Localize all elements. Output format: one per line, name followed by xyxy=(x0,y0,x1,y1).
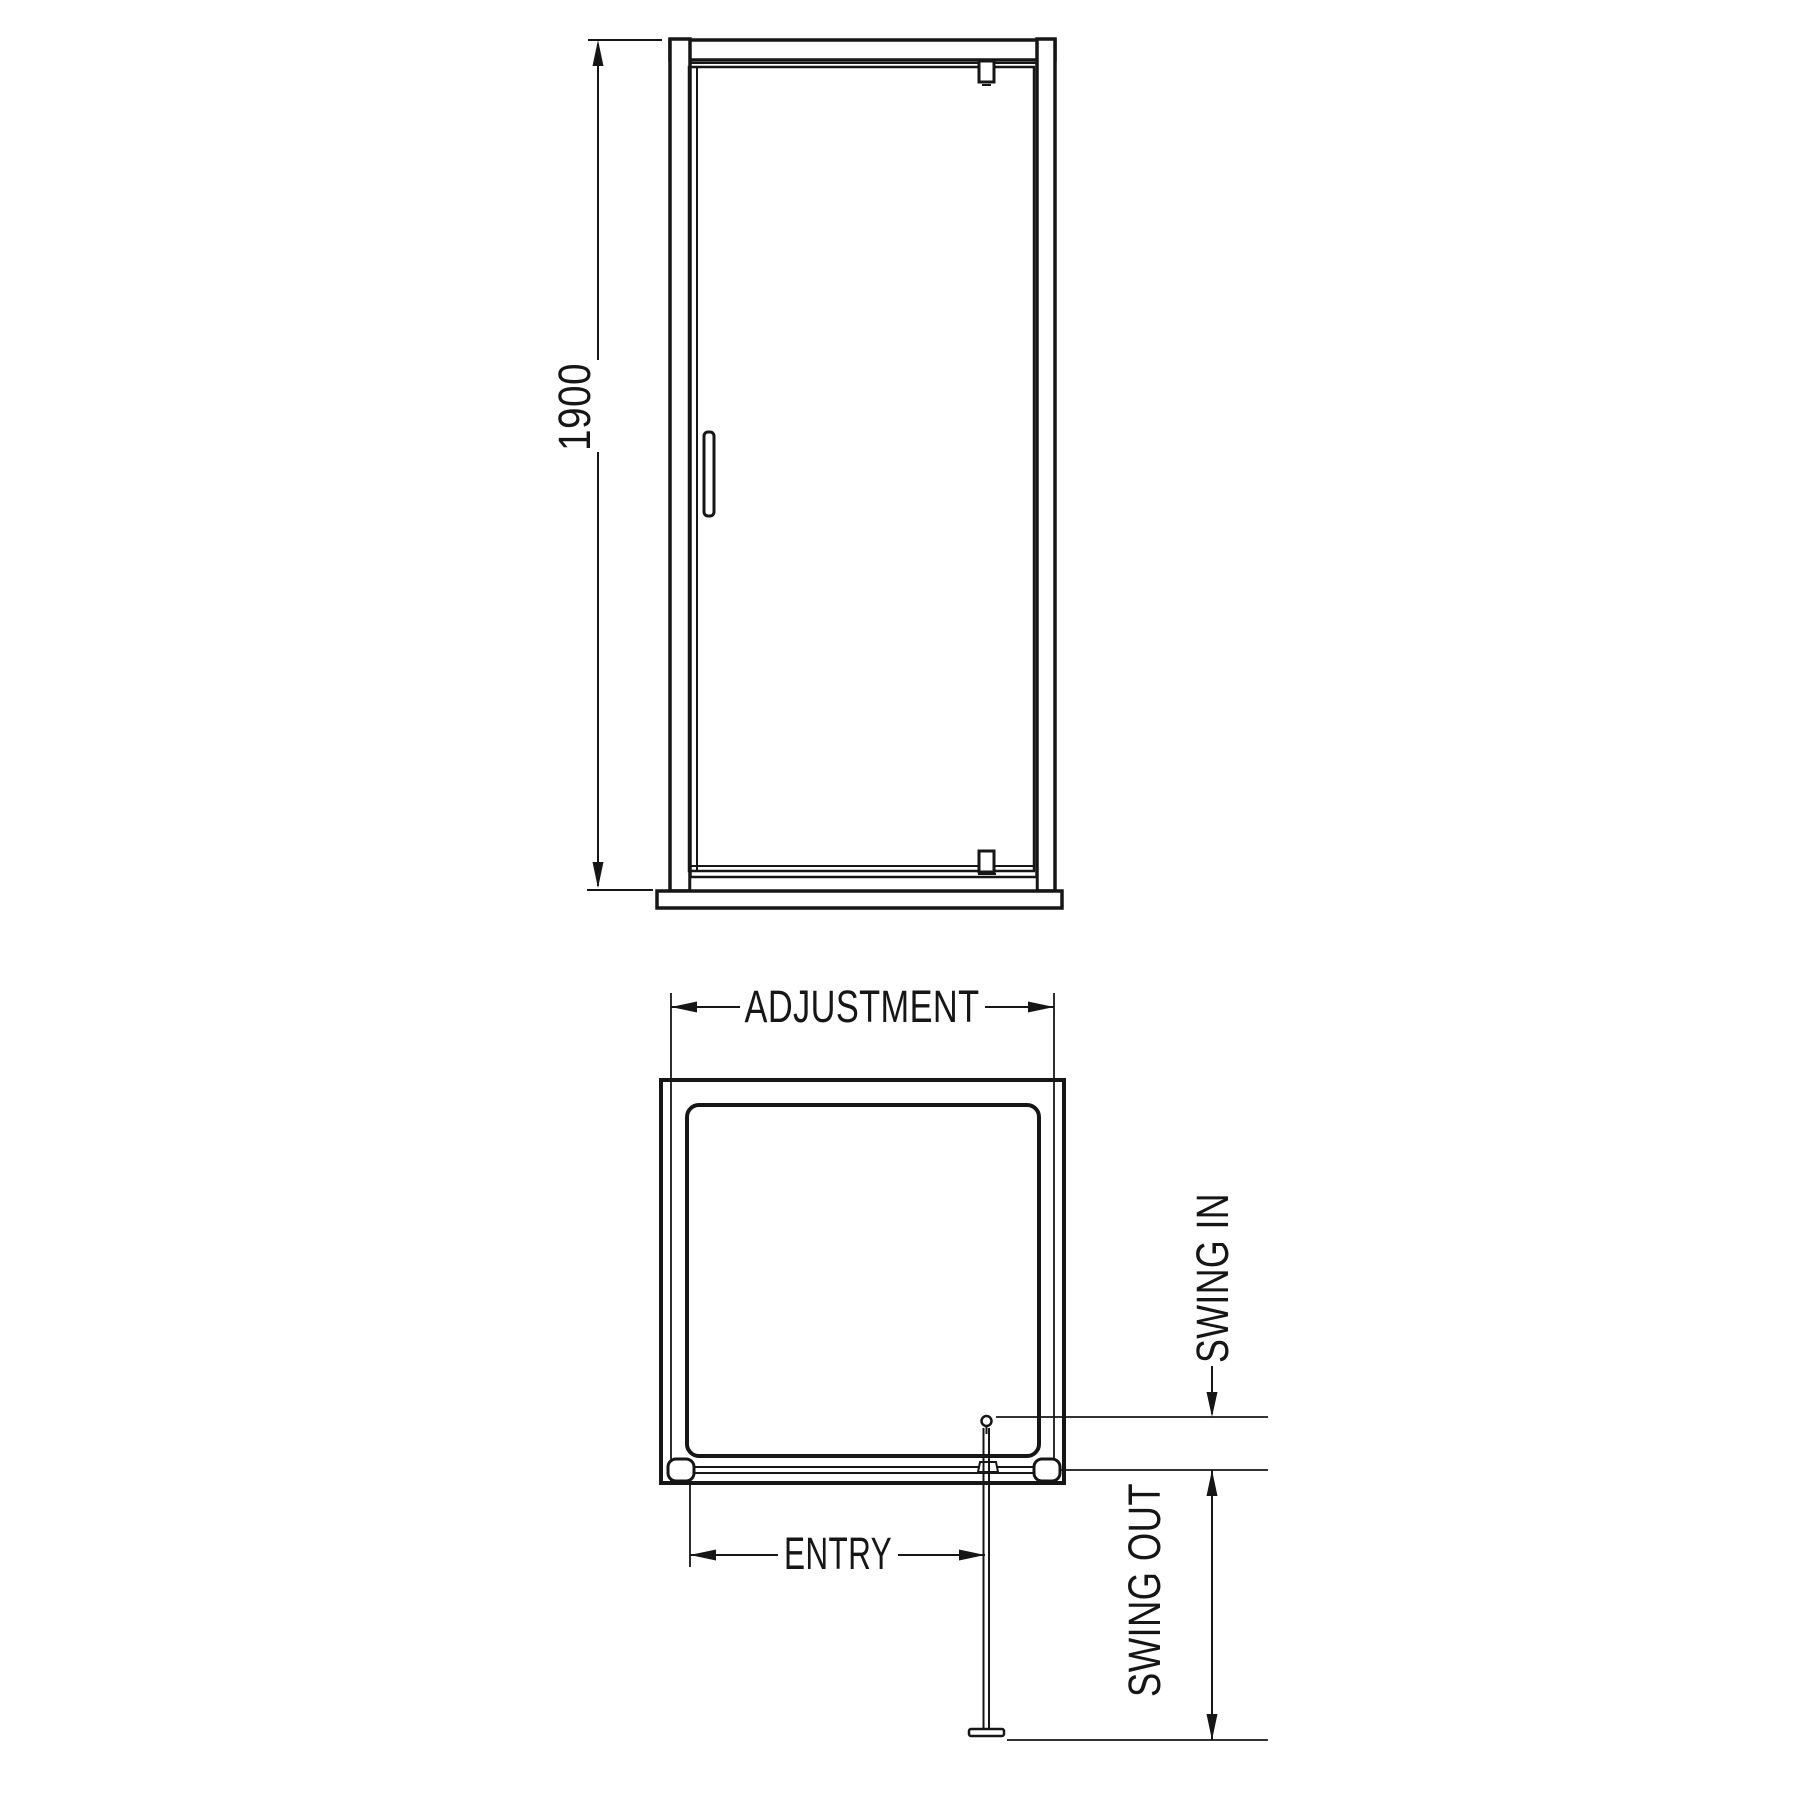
entry-dimension: ENTRY xyxy=(690,1483,985,1579)
door-glass-panel xyxy=(689,67,1034,871)
entry-dimension-label: ENTRY xyxy=(784,1528,892,1579)
arrow-down-icon xyxy=(593,862,604,888)
arrow-down-icon xyxy=(1207,1392,1218,1417)
height-dimension-label: 1900 xyxy=(549,363,600,451)
adjustment-dimension: ADJUSTMENT xyxy=(671,981,1054,1032)
frame-left-post xyxy=(670,39,690,891)
front-elevation-view: 1900 xyxy=(549,39,1062,908)
arrow-down-icon xyxy=(1207,1714,1218,1740)
bottom-pivot-bracket xyxy=(978,851,996,874)
swing-out-dimension: SWING OUT xyxy=(1007,1470,1268,1740)
plan-view: ADJUSTMENT ENTRY SWING IN SWING OUT xyxy=(661,981,1268,1740)
shower-tray-base xyxy=(657,891,1062,908)
height-dimension: 1900 xyxy=(549,40,662,890)
arrow-left-icon xyxy=(671,1002,697,1013)
swing-in-dimension-label: SWING IN xyxy=(1187,1193,1238,1363)
arrow-up-icon xyxy=(593,40,604,66)
arrow-left-icon xyxy=(690,1550,716,1561)
frame-right-post xyxy=(1037,39,1055,891)
arrow-right-icon xyxy=(1028,1002,1054,1013)
plan-left-wall-bracket xyxy=(668,1459,694,1481)
arrow-right-icon xyxy=(959,1550,985,1561)
plan-right-wall-bracket xyxy=(1034,1459,1060,1481)
door-handle xyxy=(704,432,714,516)
technical-drawing-canvas: 1900 xyxy=(0,0,1800,1800)
plan-door-knob xyxy=(982,1416,992,1426)
adjustment-dimension-label: ADJUSTMENT xyxy=(745,981,980,1032)
frame-top-bar xyxy=(670,40,1055,60)
swing-out-dimension-label: SWING OUT xyxy=(1119,1483,1170,1697)
plan-door-tip-handle xyxy=(969,1729,1004,1736)
shower-door-drawing: 1900 xyxy=(0,0,1800,1800)
frame-bottom-sill xyxy=(690,877,1037,891)
plan-tray-inner xyxy=(687,1105,1039,1456)
arrow-up-icon xyxy=(1207,1470,1218,1496)
elevation-frame xyxy=(657,39,1062,908)
top-pivot-bracket xyxy=(979,61,994,85)
